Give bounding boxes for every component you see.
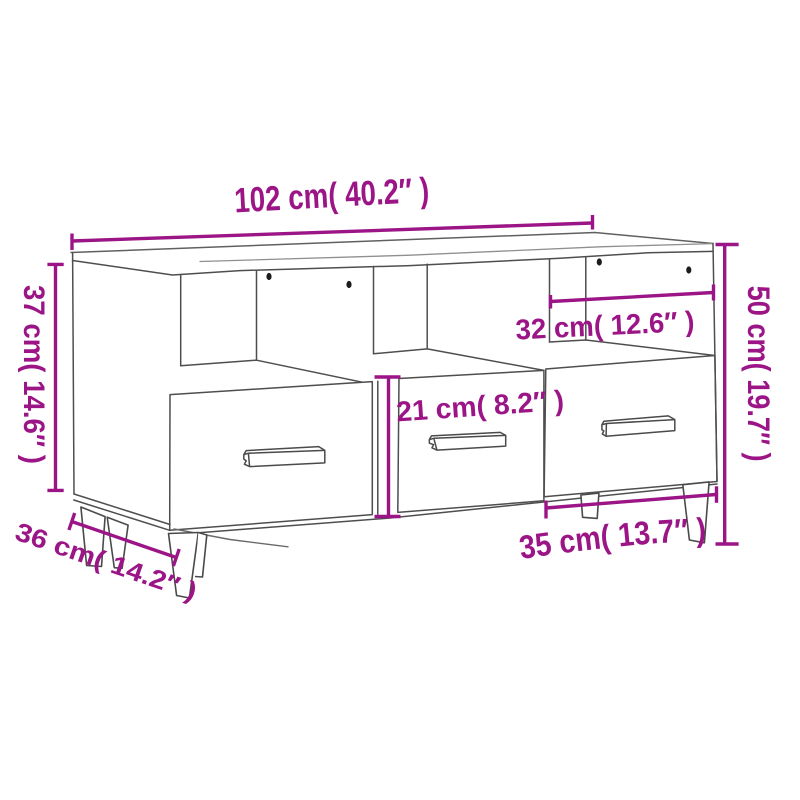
- svg-text:37 cm( 14.6″ ): 37 cm( 14.6″ ): [17, 285, 50, 464]
- svg-text:50 cm( 19.7″ ): 50 cm( 19.7″ ): [741, 286, 777, 462]
